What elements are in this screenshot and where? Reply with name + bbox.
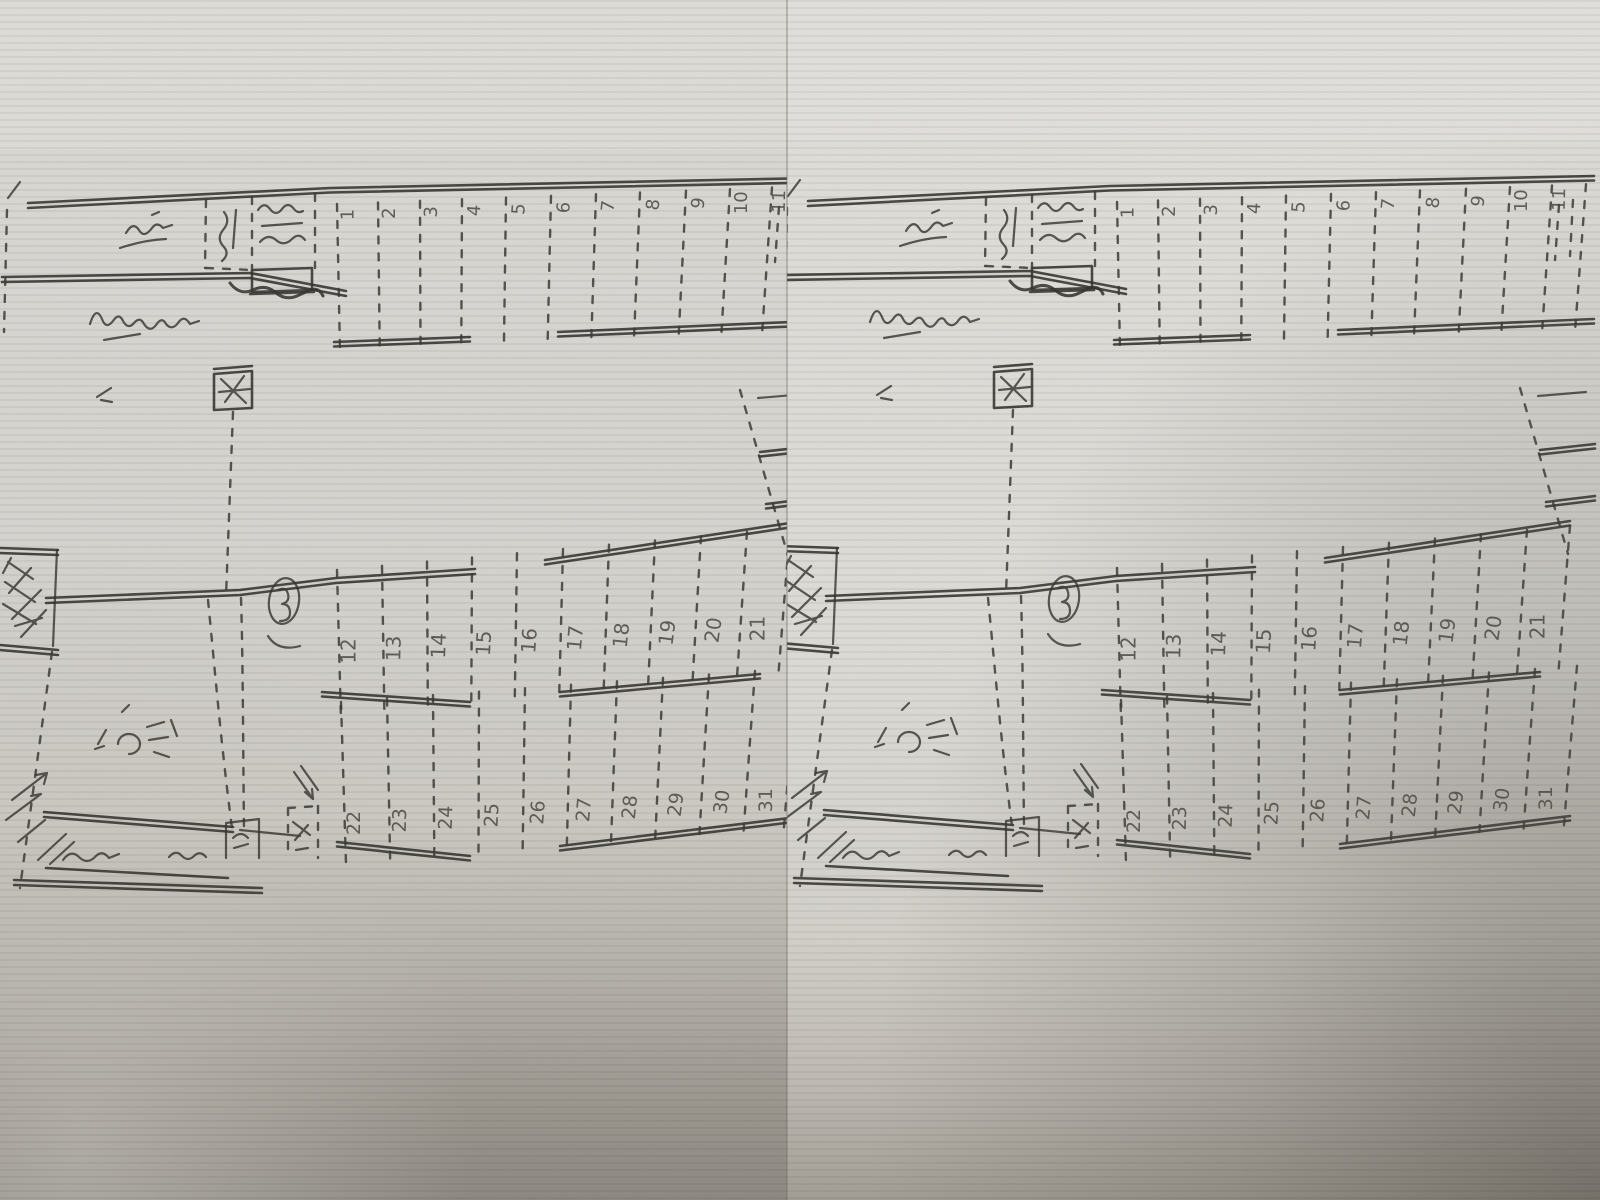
photo-of-site-plan: 1234567891011121314151617181920212223242… [0,0,1600,1200]
grain-overlay [0,0,1600,1200]
site-plan-canvas: 1234567891011121314151617181920212223242… [0,0,1600,1200]
